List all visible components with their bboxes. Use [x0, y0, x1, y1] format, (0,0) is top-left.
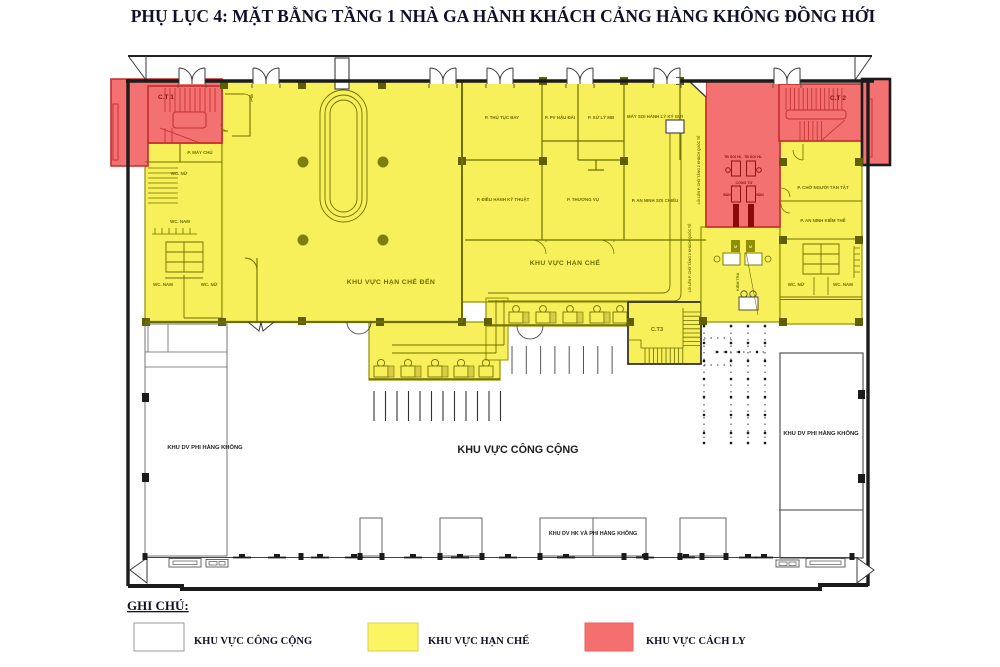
- svg-text:P. AN NINH KIỂM THỂ: P. AN NINH KIỂM THỂ: [800, 218, 845, 223]
- svg-text:WC. NAM: WC. NAM: [153, 282, 173, 287]
- svg-text:M: M: [734, 244, 737, 249]
- svg-text:KIỂM TRA: KIỂM TRA: [735, 272, 740, 291]
- svg-text:C.T 2: C.T 2: [830, 95, 846, 102]
- svg-text:CỔNG TỪ: CỔNG TỪ: [736, 180, 753, 185]
- svg-text:P. THỦ TỤC BAY: P. THỦ TỤC BAY: [485, 115, 519, 120]
- svg-text:WC. NỮ: WC. NỮ: [201, 282, 218, 287]
- svg-text:KHU DV PHI HÀNG KHÔNG: KHU DV PHI HÀNG KHÔNG: [167, 443, 243, 451]
- svg-text:P. PV HẬU ĐÀI: P. PV HẬU ĐÀI: [545, 115, 575, 120]
- svg-text:BÀN: BÀN: [756, 192, 764, 197]
- svg-text:KHU VỰC CÔNG CỘNG: KHU VỰC CÔNG CỘNG: [194, 634, 312, 647]
- svg-text:MÁY SOI HÀNH LÝ KÝ GỬI: MÁY SOI HÀNH LÝ KÝ GỬI: [627, 114, 683, 119]
- svg-text:KHU DV PHI HÀNG KHÔNG: KHU DV PHI HÀNG KHÔNG: [783, 429, 859, 437]
- svg-text:KHU VỰC HẠN CHẾ: KHU VỰC HẠN CHẾ: [428, 634, 529, 647]
- svg-text:WC. NỮ: WC. NỮ: [788, 282, 805, 287]
- svg-text:P. THƯƠNG VỤ: P. THƯƠNG VỤ: [567, 197, 599, 202]
- svg-text:P. MÁY CHỦ: P. MÁY CHỦ: [187, 150, 212, 155]
- svg-text:TB SOI HL: TB SOI HL: [724, 155, 743, 159]
- svg-text:WC. NAM: WC. NAM: [833, 282, 853, 287]
- svg-text:C.T 1: C.T 1: [158, 94, 174, 101]
- svg-text:BÀN: BÀN: [723, 192, 731, 197]
- svg-text:KHU VỰC CÔNG CỘNG: KHU VỰC CÔNG CỘNG: [457, 443, 578, 456]
- svg-text:TB SOI HL: TB SOI HL: [744, 155, 763, 159]
- svg-text:WC. NAM: WC. NAM: [170, 219, 190, 224]
- svg-text:GHI CHÚ:: GHI CHÚ:: [127, 598, 189, 613]
- svg-text:KHU DV HK VÀ PHI HÀNG KHÔNG: KHU DV HK VÀ PHI HÀNG KHÔNG: [549, 529, 637, 537]
- svg-text:KHU VỰC CÁCH LY: KHU VỰC CÁCH LY: [646, 635, 746, 647]
- svg-text:LỐI LÊN P. CHỜ TẦNG 2 KHÁCH QU: LỐI LÊN P. CHỜ TẦNG 2 KHÁCH QUỐC TẾ: [696, 135, 701, 205]
- svg-text:PHỤ LỤC 4: MẶT BẰNG TẦNG 1 NHÀ: PHỤ LỤC 4: MẶT BẰNG TẦNG 1 NHÀ GA HÀNH K…: [131, 6, 876, 26]
- svg-text:P. AN NINH SOI CHIẾU: P. AN NINH SOI CHIẾU: [632, 198, 679, 203]
- svg-text:P. CHỜ NGƯỜI TÀN TẬT: P. CHỜ NGƯỜI TÀN TẬT: [797, 185, 849, 190]
- svg-text:LỐI LÊN P. CHỜ TẦNG 2 KHÁCH QU: LỐI LÊN P. CHỜ TẦNG 2 KHÁCH QUỐC TẾ: [687, 223, 692, 293]
- svg-text:P. XỬ LÝ MB: P. XỬ LÝ MB: [588, 115, 614, 120]
- svg-text:M: M: [749, 244, 752, 249]
- svg-text:C.T3: C.T3: [651, 327, 663, 333]
- svg-text:P. ĐIỀU HÀNH KỸ THUẬT: P. ĐIỀU HÀNH KỸ THUẬT: [477, 197, 530, 202]
- svg-text:WC. NỮ: WC. NỮ: [171, 171, 188, 176]
